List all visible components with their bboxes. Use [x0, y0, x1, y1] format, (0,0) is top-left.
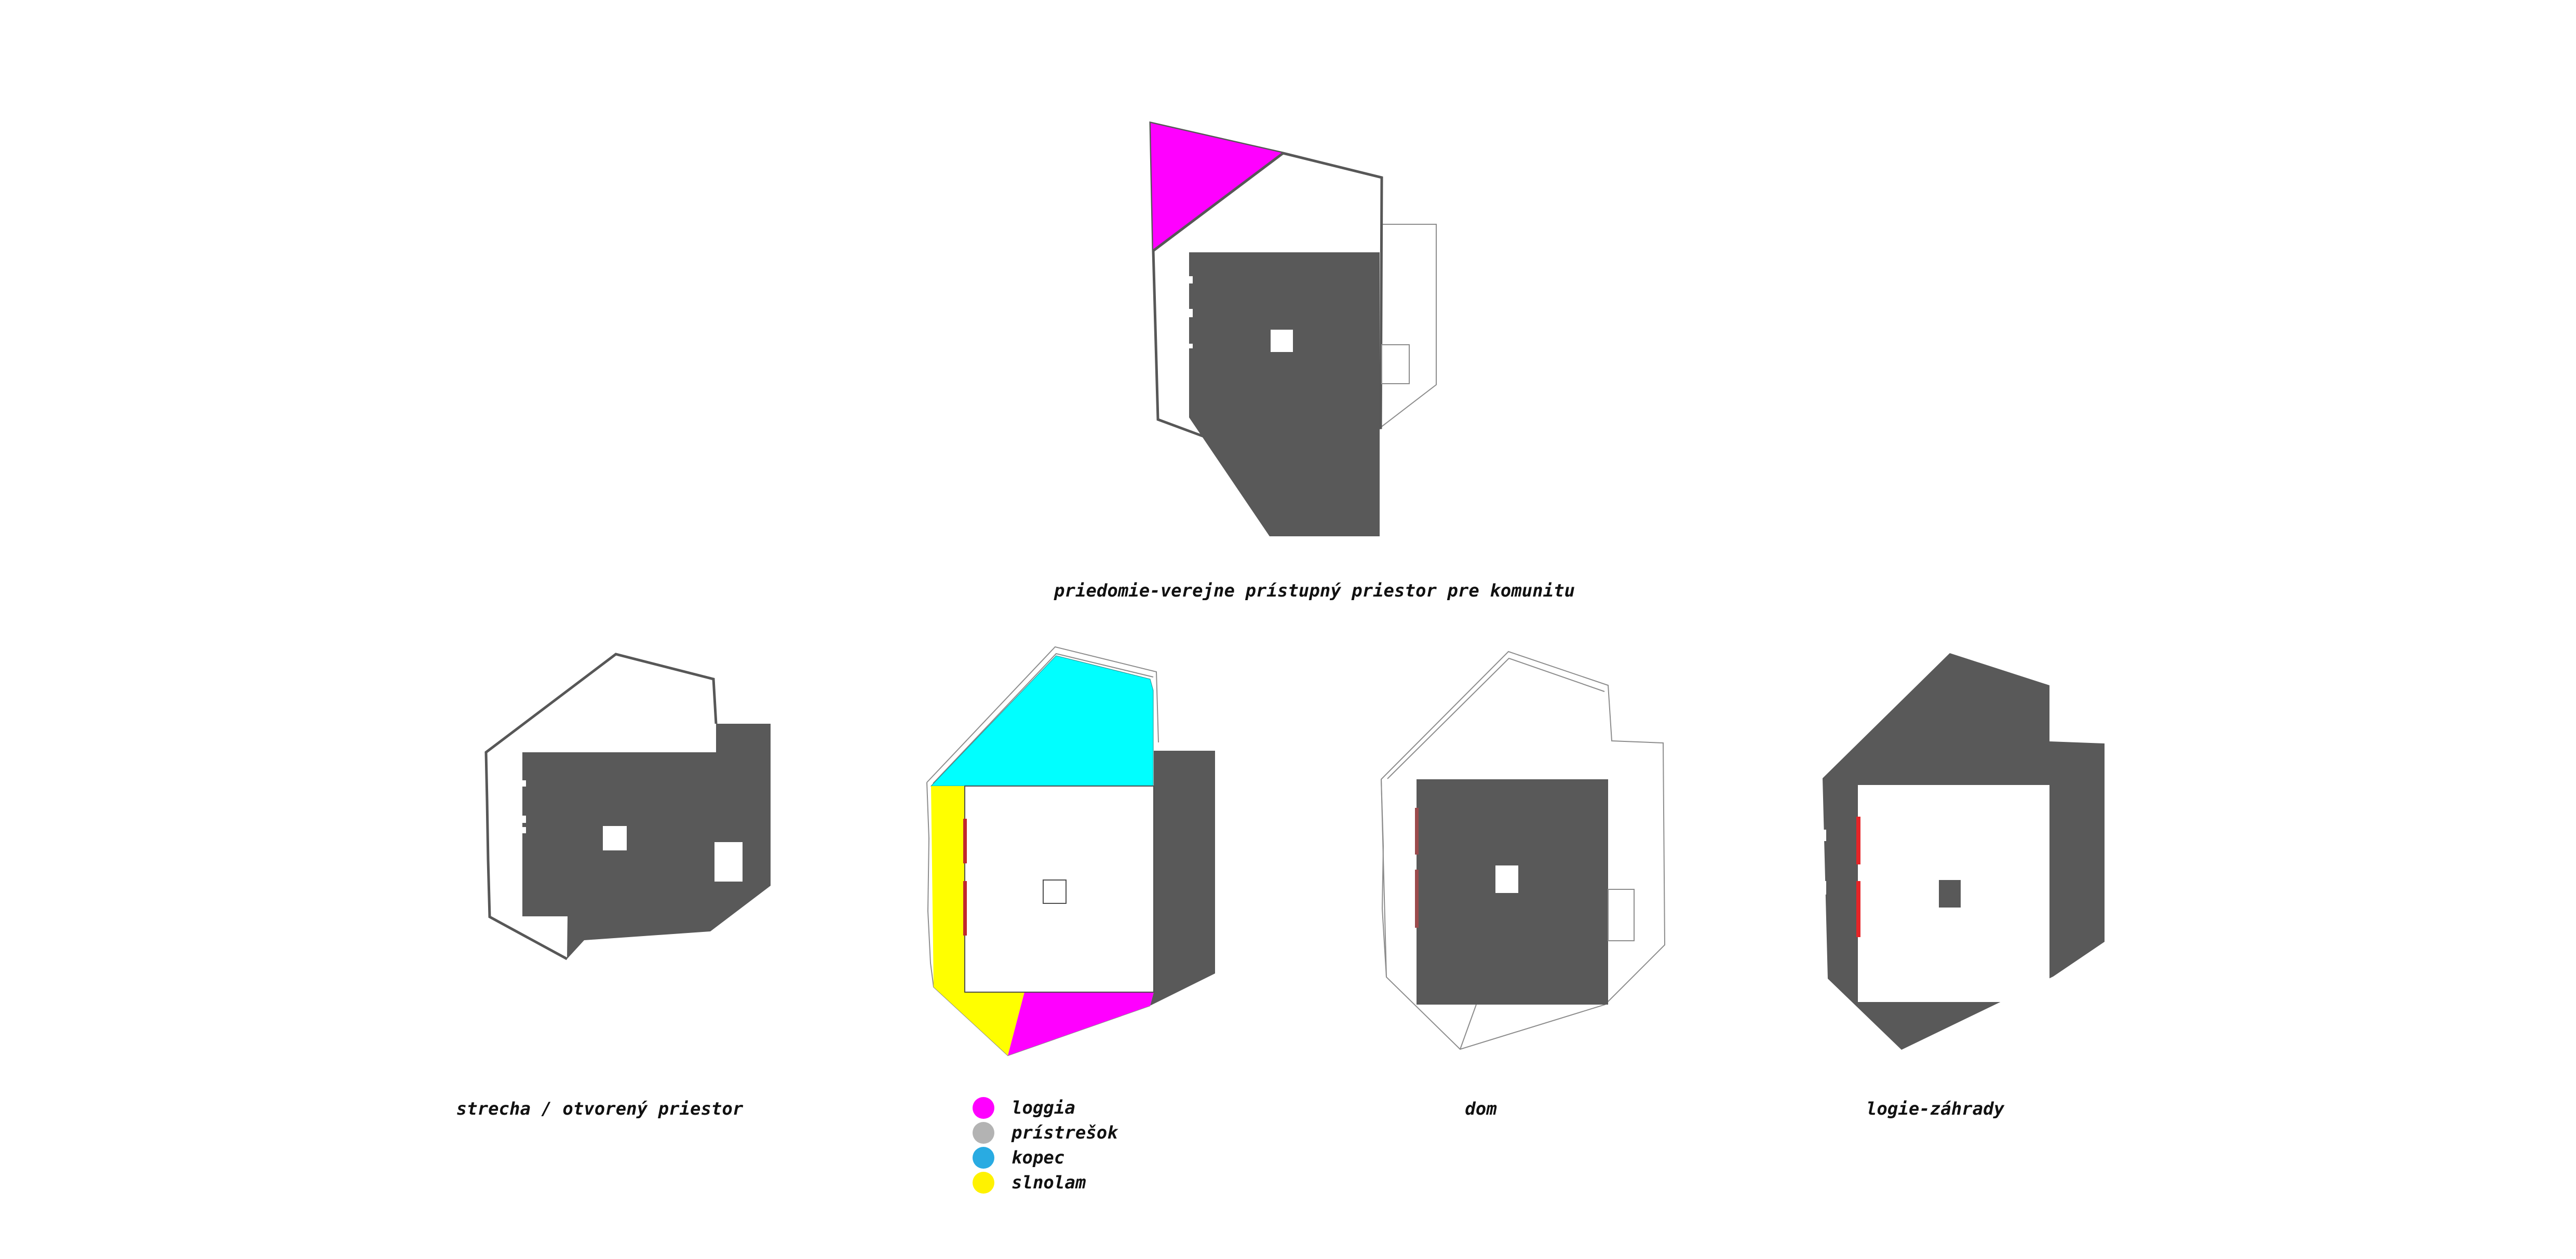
legend-label-pristresok: prístrešok — [1011, 1122, 1118, 1143]
caption-priedomie: priedomie-verejne prístupný priestor pre… — [1054, 579, 1573, 602]
pristresok-swatch-icon — [972, 1121, 995, 1144]
facade-notch — [1820, 881, 1826, 895]
facade-notch — [521, 780, 526, 787]
canvas: priedomie-verejne prístupný priestor pre… — [0, 0, 2576, 1259]
facade-notch — [1188, 344, 1193, 348]
figure-priedomie — [1140, 109, 1498, 574]
facade-notch — [1188, 309, 1193, 317]
atrium-opening — [1495, 865, 1518, 893]
legend-label-slnolam: slnolam — [1011, 1172, 1086, 1193]
red-tick — [1415, 870, 1419, 928]
caption-logie: logie-záhrady — [1805, 1098, 2065, 1120]
caption-strecha: strecha / otvorený priestor — [392, 1098, 807, 1120]
loggia-swatch — [973, 1097, 994, 1119]
red-tick — [1856, 817, 1860, 864]
atrium-opening — [603, 826, 627, 850]
red-tick — [963, 881, 967, 936]
roof-area — [522, 724, 771, 959]
kopec-swatch — [973, 1147, 994, 1169]
annex-rect — [1382, 345, 1409, 384]
loggia-swatch-icon — [972, 1096, 995, 1119]
core-block — [1939, 880, 1961, 908]
legend-row-loggia: loggia — [972, 1095, 1118, 1120]
figure-dom-svg — [1360, 639, 1682, 1067]
atrium-opening — [1271, 330, 1293, 352]
facade-notch — [521, 816, 526, 823]
atrium-opening — [1043, 880, 1066, 903]
legend-label-kopec: kopec — [1011, 1147, 1064, 1168]
pristresok-swatch — [973, 1122, 994, 1144]
legend-row-kopec: kopec — [972, 1145, 1118, 1170]
kopec-swatch-icon — [972, 1146, 995, 1169]
slnolam-swatch — [973, 1172, 994, 1194]
annex-rect — [1608, 889, 1634, 941]
legend-label-loggia: loggia — [1011, 1098, 1075, 1118]
figure-strecha-svg — [467, 639, 789, 1067]
facade-notch — [521, 827, 526, 833]
facade-notch — [1820, 937, 1826, 950]
building-footprint — [1189, 252, 1380, 536]
legend: loggia prístrešok kopec slnolam — [972, 1095, 1118, 1195]
roof-opening — [714, 842, 743, 882]
legend-row-pristresok: prístrešok — [972, 1120, 1118, 1145]
pristresok-area — [1150, 751, 1215, 1006]
facade-notch — [1188, 276, 1193, 283]
legend-row-slnolam: slnolam — [972, 1170, 1118, 1195]
caption-dom: dom — [1351, 1098, 1611, 1120]
red-tick — [963, 819, 967, 863]
figure-logie — [1802, 636, 2124, 1067]
figure-priedomie-svg — [1140, 109, 1498, 574]
figure-logie-svg — [1802, 636, 2124, 1067]
figure-zones-svg — [922, 641, 1244, 1067]
kopec-area — [931, 656, 1153, 786]
loggia-area — [1008, 992, 1154, 1055]
slnolam-swatch-icon — [972, 1171, 995, 1194]
figure-zones — [922, 641, 1244, 1067]
figure-strecha — [467, 639, 789, 1067]
red-tick — [1415, 808, 1419, 855]
figure-dom — [1360, 639, 1682, 1067]
facade-notch — [1820, 830, 1826, 841]
red-tick — [1856, 881, 1860, 937]
